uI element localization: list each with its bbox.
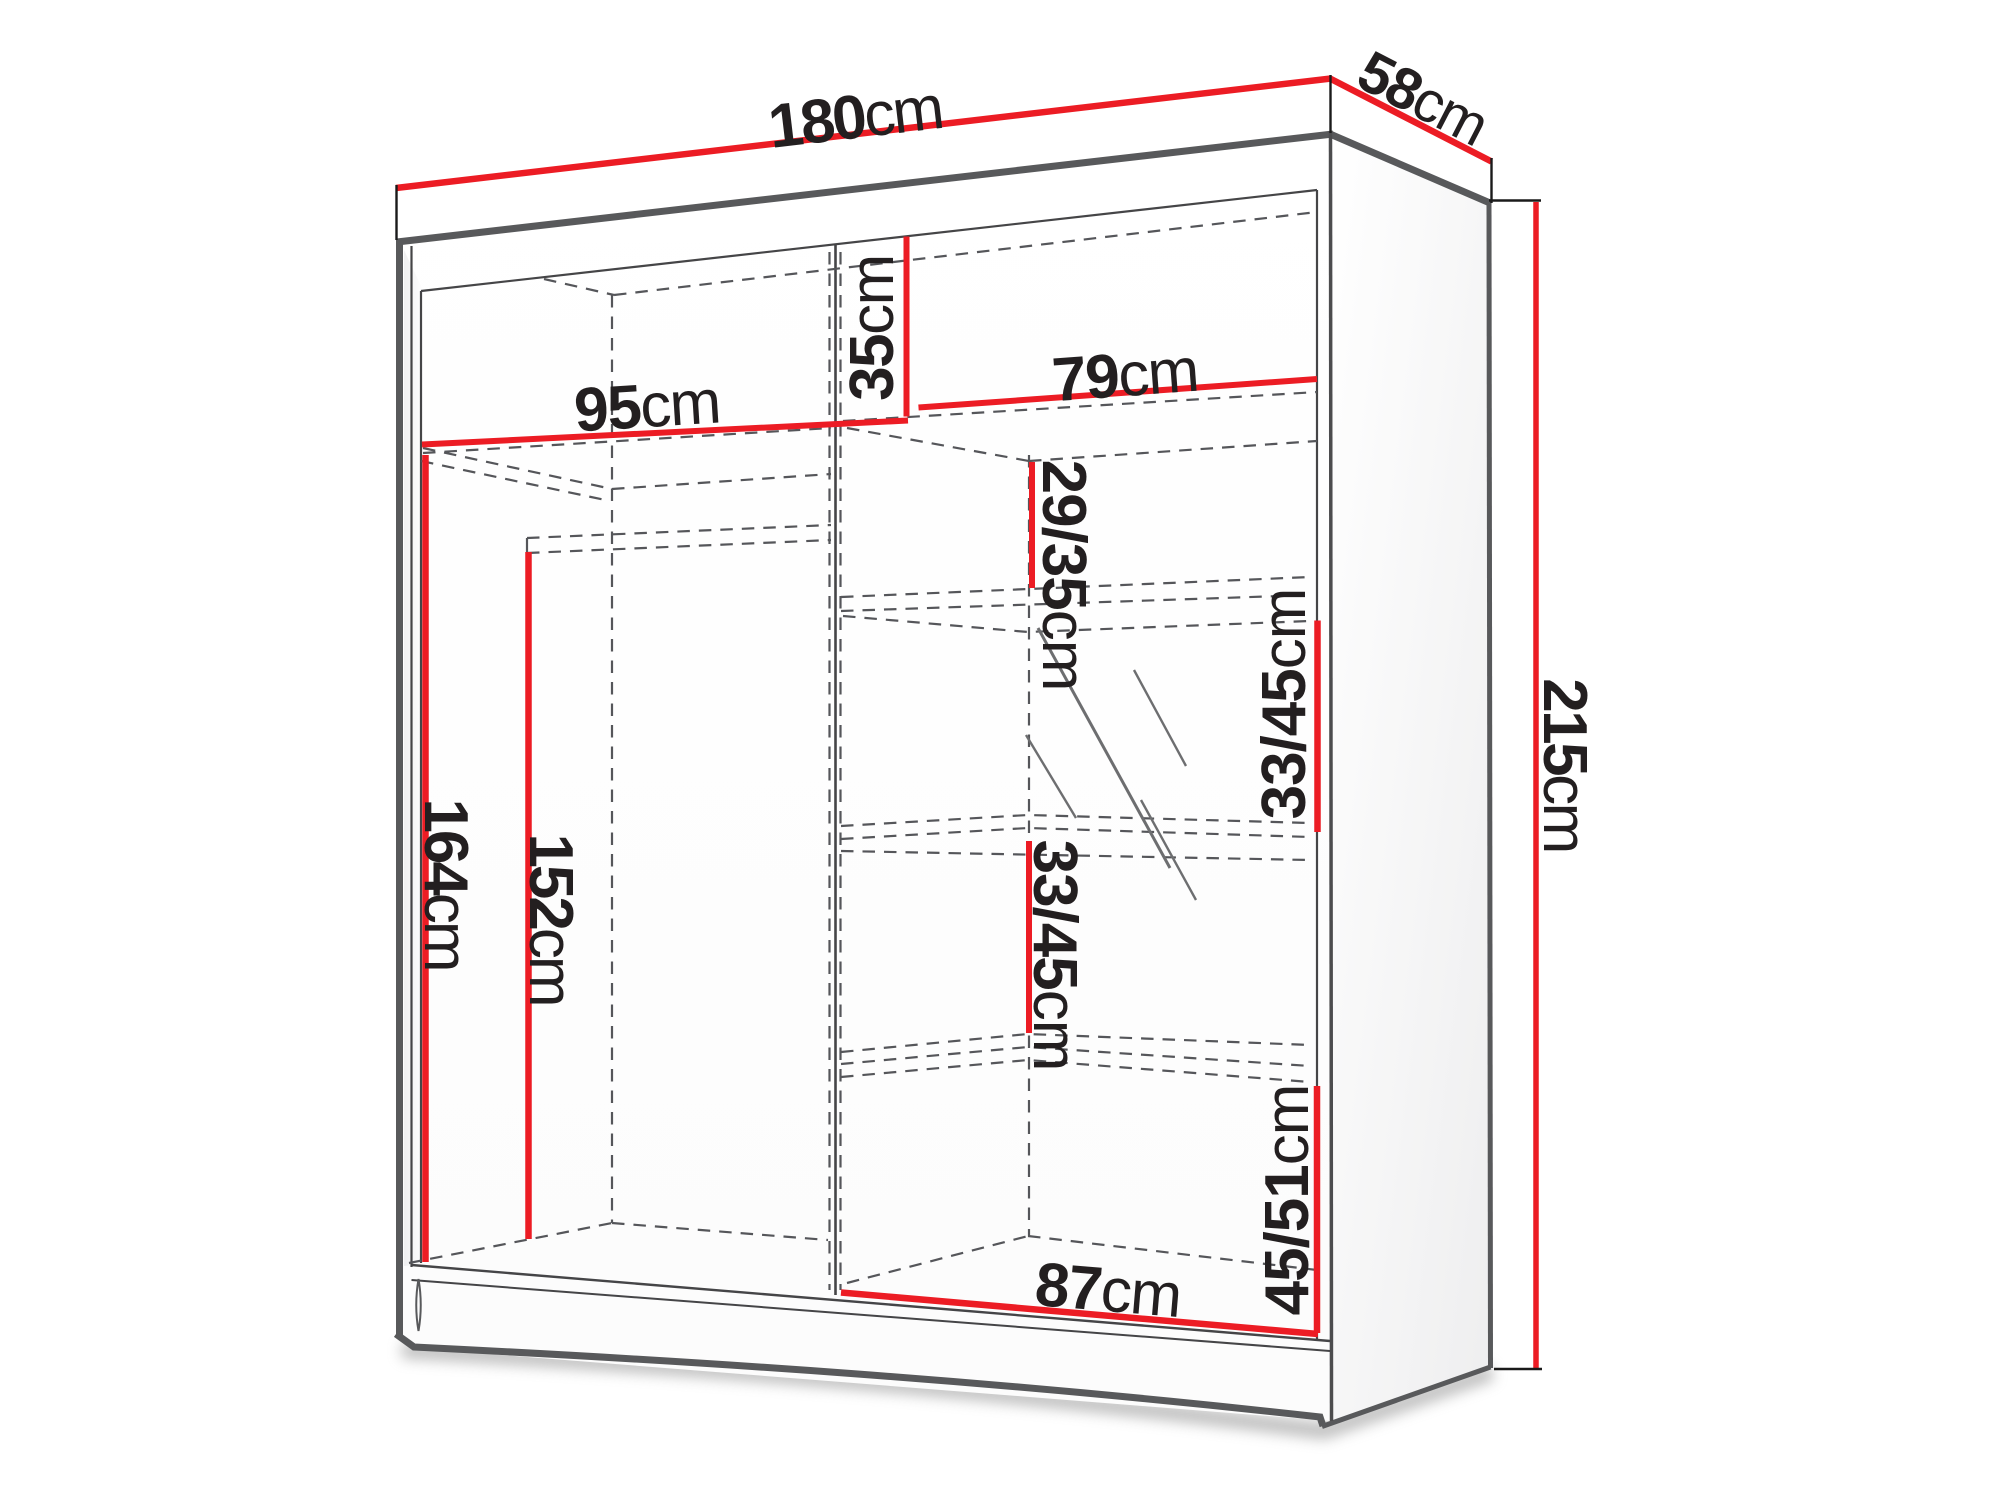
svg-text:29/35cm: 29/35cm <box>1030 460 1099 691</box>
svg-text:164cm: 164cm <box>412 798 481 969</box>
svg-text:33/45cm: 33/45cm <box>1021 840 1090 1071</box>
svg-text:87cm: 87cm <box>1033 1250 1184 1331</box>
svg-text:35cm: 35cm <box>838 255 907 401</box>
svg-text:79cm: 79cm <box>1050 335 1200 414</box>
svg-text:45/51cm: 45/51cm <box>1253 1085 1322 1316</box>
svg-text:215cm: 215cm <box>1531 678 1600 852</box>
svg-text:95cm: 95cm <box>572 367 722 445</box>
svg-text:33/45cm: 33/45cm <box>1250 589 1319 820</box>
svg-text:152cm: 152cm <box>517 833 586 1004</box>
